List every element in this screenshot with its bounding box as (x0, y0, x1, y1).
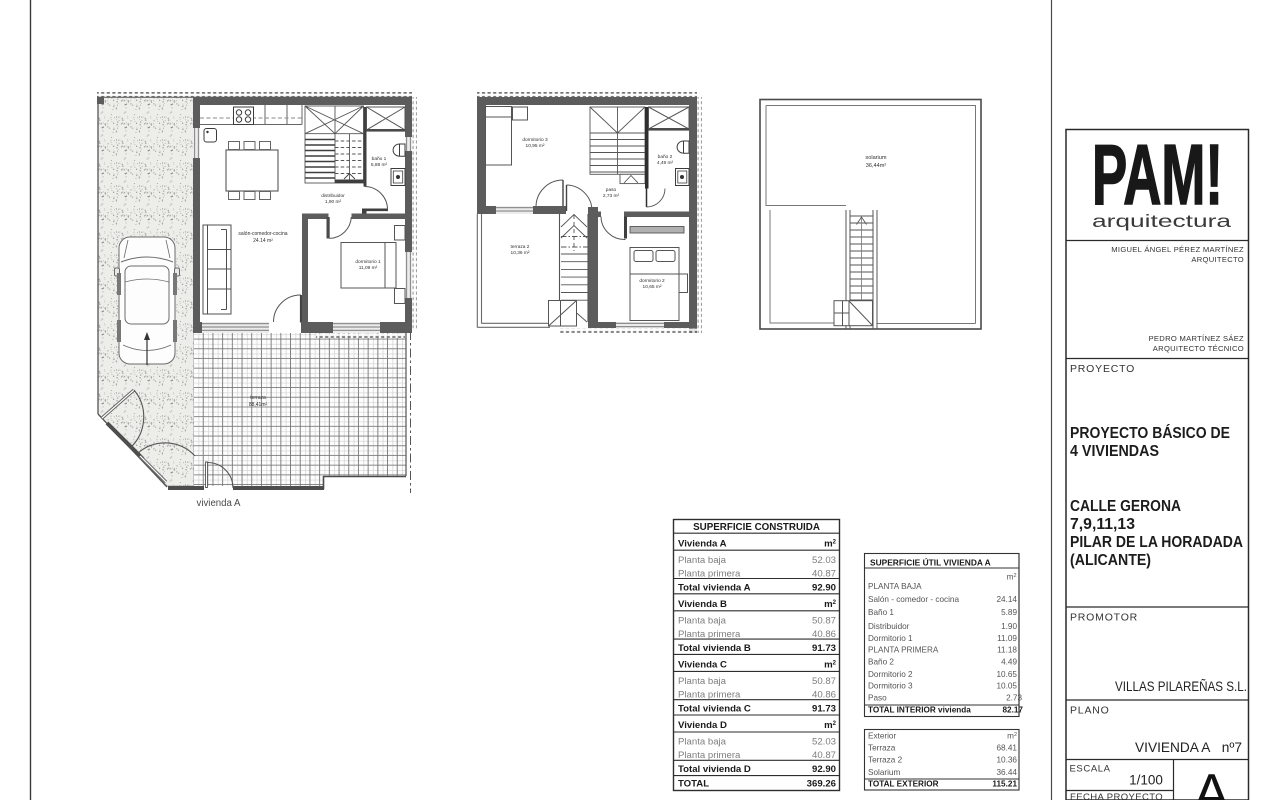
svg-text:ARQUITECTO: ARQUITECTO (1191, 255, 1244, 264)
svg-text:10,36 m²: 10,36 m² (511, 250, 530, 256)
svg-text:68.41: 68.41 (997, 744, 1018, 753)
svg-text:10.05: 10.05 (997, 682, 1018, 691)
svg-text:Total vivienda C: Total vivienda C (678, 704, 751, 715)
svg-text:SUPERFICIE ÚTIL VIVIENDA A: SUPERFICIE ÚTIL VIVIENDA A (870, 557, 991, 568)
svg-text:terraza: terraza (250, 395, 266, 401)
svg-text:baño 2: baño 2 (658, 154, 673, 160)
svg-text:Vivienda C: Vivienda C (678, 660, 727, 671)
svg-text:1,90 m²: 1,90 m² (325, 199, 342, 205)
svg-text:40.87: 40.87 (812, 750, 836, 761)
svg-text:ARQUITECTO TÉCNICO: ARQUITECTO TÉCNICO (1153, 344, 1244, 353)
svg-text:Total vivienda D: Total vivienda D (678, 764, 751, 775)
svg-text:FECHA PROYECTO: FECHA PROYECTO (1070, 792, 1163, 800)
svg-text:Total vivienda A: Total vivienda A (678, 583, 751, 594)
svg-text:91.73: 91.73 (812, 704, 836, 715)
svg-text:40.87: 40.87 (812, 569, 836, 580)
svg-text:PLANTA PRIMERA: PLANTA PRIMERA (868, 646, 939, 655)
svg-text:ESCALA: ESCALA (1070, 764, 1111, 775)
svg-text:paso: paso (606, 188, 617, 193)
svg-text:11,09 m²: 11,09 m² (359, 265, 378, 271)
svg-text:2,73 m²: 2,73 m² (603, 193, 620, 199)
svg-text:solarium: solarium (865, 155, 886, 161)
svg-text:terraza 2: terraza 2 (511, 244, 530, 250)
svg-text:10.36: 10.36 (997, 756, 1018, 765)
svg-text:24.14: 24.14 (997, 595, 1018, 604)
svg-text:50.87: 50.87 (812, 676, 836, 687)
svg-text:salón-comedor-cocina: salón-comedor-cocina (238, 231, 287, 237)
svg-text:4.49: 4.49 (1001, 658, 1017, 667)
svg-text:Distribuidor: Distribuidor (868, 622, 910, 631)
svg-text:CALLE GERONA: CALLE GERONA (1070, 498, 1181, 515)
svg-text:Planta baja: Planta baja (678, 676, 727, 687)
svg-text:VIVIENDA A nº7: VIVIENDA A nº7 (1135, 740, 1242, 755)
svg-text:Baño 1: Baño 1 (868, 608, 894, 617)
svg-text:dormitorio 1: dormitorio 1 (355, 259, 381, 265)
svg-text:(ALICANTE): (ALICANTE) (1070, 552, 1151, 569)
svg-text:dormitorio 3: dormitorio 3 (522, 137, 548, 143)
svg-text:Vivienda D: Vivienda D (678, 720, 727, 731)
svg-text:115.21: 115.21 (992, 780, 1017, 789)
svg-text:Total vivienda B: Total vivienda B (678, 643, 751, 654)
svg-text:Dormitorio 1: Dormitorio 1 (868, 634, 913, 643)
svg-text:91.73: 91.73 (812, 643, 836, 654)
svg-text:Exterior: Exterior (868, 732, 896, 741)
svg-text:Vivienda A: Vivienda A (678, 539, 727, 550)
svg-text:distribuidor: distribuidor (321, 193, 345, 199)
svg-text:Solarium: Solarium (868, 768, 900, 777)
svg-text:baño 1: baño 1 (372, 156, 387, 162)
svg-text:Salón - comedor - cocina: Salón - comedor - cocina (868, 595, 959, 604)
svg-text:arquitectura: arquitectura (1092, 211, 1231, 231)
svg-text:PROYECTO: PROYECTO (1070, 363, 1135, 375)
svg-text:24.14 m²: 24.14 m² (253, 238, 273, 244)
svg-text:PLANO: PLANO (1070, 705, 1110, 717)
svg-text:Baño 2: Baño 2 (868, 658, 894, 667)
svg-text:36.44: 36.44 (997, 768, 1018, 777)
svg-text:VILLAS PILAREÑAS S.L.: VILLAS PILAREÑAS S.L. (1115, 679, 1247, 694)
svg-text:Planta baja: Planta baja (678, 737, 727, 748)
svg-text:PROYECTO BÁSICO DE: PROYECTO BÁSICO DE (1070, 425, 1230, 442)
svg-text:Vivienda B: Vivienda B (678, 599, 727, 610)
svg-text:10,65 m²: 10,65 m² (643, 284, 662, 290)
svg-text:Paso: Paso (868, 694, 887, 703)
svg-text:369.26: 369.26 (807, 779, 836, 790)
svg-text:36,44m²: 36,44m² (866, 163, 887, 169)
svg-text:Dormitorio 3: Dormitorio 3 (868, 682, 913, 691)
svg-text:50.87: 50.87 (812, 616, 836, 627)
svg-text:Planta baja: Planta baja (678, 616, 727, 627)
svg-text:PROMOTOR: PROMOTOR (1070, 612, 1138, 624)
svg-text:2.73: 2.73 (1006, 694, 1022, 703)
svg-text:Dormitorio 2: Dormitorio 2 (868, 670, 913, 679)
svg-text:PLANTA BAJA: PLANTA BAJA (868, 582, 922, 591)
svg-text:A: A (1193, 762, 1230, 800)
svg-text:Terraza: Terraza (868, 744, 896, 753)
svg-text:Planta primera: Planta primera (678, 629, 741, 640)
svg-text:Planta primera: Planta primera (678, 750, 741, 761)
svg-text:PEDRO MARTÍNEZ SÁEZ: PEDRO MARTÍNEZ SÁEZ (1149, 334, 1244, 343)
svg-text:TOTAL INTERIOR vivienda: TOTAL INTERIOR vivienda (868, 706, 971, 715)
svg-text:11.09: 11.09 (997, 634, 1017, 643)
svg-text:7,9,11,13: 7,9,11,13 (1070, 516, 1135, 533)
svg-text:88,41m²: 88,41m² (249, 402, 268, 408)
svg-text:10.65: 10.65 (997, 670, 1018, 679)
svg-text:TOTAL: TOTAL (678, 779, 709, 790)
svg-text:5.89: 5.89 (1001, 608, 1017, 617)
svg-text:5,88 m²: 5,88 m² (371, 162, 388, 168)
svg-text:52.03: 52.03 (812, 555, 836, 566)
svg-text:92.90: 92.90 (812, 764, 836, 775)
svg-text:11.18: 11.18 (997, 646, 1017, 655)
svg-text:Planta primera: Planta primera (678, 690, 741, 701)
svg-text:Planta baja: Planta baja (678, 555, 727, 566)
svg-text:Terraza 2: Terraza 2 (868, 756, 903, 765)
svg-text:1/100: 1/100 (1129, 773, 1163, 788)
svg-text:TOTAL EXTERIOR: TOTAL EXTERIOR (868, 780, 939, 789)
svg-text:40.86: 40.86 (812, 629, 836, 640)
svg-text:52.03: 52.03 (812, 737, 836, 748)
svg-text:4 VIVIENDAS: 4 VIVIENDAS (1070, 443, 1159, 460)
svg-text:4,49 m²: 4,49 m² (657, 160, 674, 166)
svg-text:82.17: 82.17 (1003, 706, 1024, 715)
svg-text:92.90: 92.90 (812, 583, 836, 594)
svg-text:40.86: 40.86 (812, 690, 836, 701)
svg-text:1.90: 1.90 (1001, 622, 1017, 631)
svg-text:MIGUEL ÁNGEL PÉREZ MARTÍNEZ: MIGUEL ÁNGEL PÉREZ MARTÍNEZ (1111, 245, 1244, 254)
svg-text:SUPERFICIE CONSTRUIDA: SUPERFICIE CONSTRUIDA (693, 522, 820, 533)
svg-text:PAM!: PAM! (1092, 128, 1223, 223)
svg-text:Planta primera: Planta primera (678, 569, 741, 580)
svg-text:10,95 m²: 10,95 m² (526, 143, 545, 149)
svg-text:vivienda A: vivienda A (197, 498, 241, 509)
svg-text:dormitorio 2: dormitorio 2 (639, 278, 665, 284)
svg-text:PILAR DE LA HORADADA: PILAR DE LA HORADADA (1070, 534, 1243, 551)
